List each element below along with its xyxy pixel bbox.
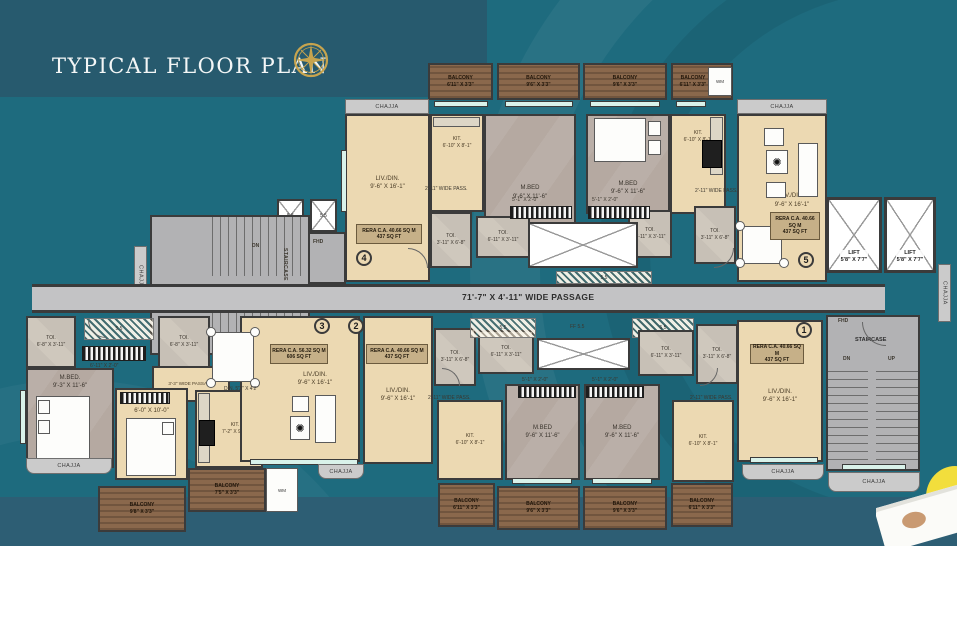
- duct-box-left-2: 5.5: [310, 199, 337, 232]
- plant-symbol: ✺: [290, 416, 310, 440]
- unit5-number: 5: [798, 252, 814, 268]
- unit5-wardrobe-label: 5'-1" X 2'-0": [592, 197, 618, 203]
- central-passage-label: 71'-7" X 4'-11" WIDE PASSAGE: [462, 292, 594, 302]
- unit1-wardrobe: [586, 386, 644, 398]
- unit4-wardrobe: [510, 206, 572, 219]
- armchair-symbol: [292, 396, 309, 412]
- duct-shaft-lower: [537, 338, 630, 370]
- unit3-wardrobe: [82, 346, 146, 361]
- duct-hatch-lower-left: 5.5: [470, 318, 536, 338]
- chajja-top-left: CHAJJA: [345, 99, 429, 114]
- central-passage: [32, 284, 885, 313]
- unit3-number: 3: [314, 318, 330, 334]
- chair-symbol: [250, 327, 260, 337]
- compass-icon: [293, 42, 329, 78]
- chajja-unit3-left: CHAJJA: [26, 458, 112, 474]
- unit3-toilet-2: TOI.6'-8" X 3'-11": [158, 316, 210, 368]
- dining-label: DIN. 5'3" X 4'2": [224, 386, 258, 392]
- dn-label-left: DN: [252, 243, 259, 249]
- unit5-passage-label: 2'-11" WIDE PASS.: [695, 188, 738, 194]
- unit4-toilet-2: TOI.6'-11" X 3'-11": [476, 216, 530, 258]
- unit3-cbed-wardrobe: [120, 392, 170, 404]
- unit2-wardrobe: [518, 386, 576, 398]
- unit5-rera-tag: RERA C.A. 40.66 SQ M437 SQ FT: [770, 212, 820, 240]
- window-sill: [434, 101, 488, 107]
- unit2-number: 2: [348, 318, 364, 334]
- duct-hatch-upper: 5.5: [556, 271, 652, 284]
- balcony-bottom-left-2: BALCONY7'5" X 3'3": [188, 468, 266, 512]
- balcony-bottom-2: BALCONY9'6" X 3'3": [497, 486, 580, 530]
- chajja-unit3-bottom: CHAJJA: [318, 464, 364, 479]
- bed-symbol-unit5: [594, 118, 646, 162]
- dining-table-symbol: [212, 332, 254, 382]
- window-sill: [341, 150, 347, 212]
- unit4-wardrobe-label: 5'-1" X 2'-0": [512, 197, 538, 203]
- stair-landing: [868, 368, 876, 467]
- window-sill: [505, 101, 573, 107]
- unit2-rera-tag: RERA C.A. 40.66 SQ M437 SQ FT: [366, 344, 428, 364]
- balcony-bottom-left-1: BALCONY9'8" X 3'3": [98, 486, 186, 532]
- window-sill: [512, 478, 572, 484]
- chajja-unit1-bottom: CHAJJA: [742, 464, 824, 480]
- chair-symbol: [735, 258, 745, 268]
- unit1-number: 1: [796, 322, 812, 338]
- unit2-master-bedroom: M.BED9'-6" X 11'-6": [505, 384, 580, 480]
- unit3-toilet-1: TOI.6'-8" X 3'-11": [26, 316, 76, 368]
- window-sill: [676, 101, 706, 107]
- chajja-right-vertical: CHAJJA: [938, 264, 951, 322]
- unit5-wardrobe: [588, 206, 650, 219]
- balcony-bottom-4: BALCONY6'11" X 3'3": [671, 483, 733, 527]
- floor-plan-page: TYPICAL FLOOR PLAN BALCONY6'11" X 3'3" B…: [0, 0, 957, 625]
- staircase-label-left: STAIRCASE: [282, 248, 288, 281]
- armchair-symbol: [766, 182, 786, 198]
- sofa-symbol: [798, 143, 818, 197]
- page-title: TYPICAL FLOOR PLAN: [52, 54, 328, 78]
- chair-symbol: [779, 258, 789, 268]
- window-sill: [20, 390, 26, 444]
- window-sill: [592, 478, 652, 484]
- window-sill: [750, 457, 818, 463]
- unit2-kitchen: KIT.6'-10" X 8'-1": [437, 400, 503, 480]
- door-arc: [714, 248, 734, 268]
- pillow-symbol: [38, 400, 50, 414]
- window-sill: [590, 101, 660, 107]
- chair-symbol: [206, 378, 216, 388]
- stove-symbol: [199, 420, 215, 446]
- pillow-symbol: [38, 420, 50, 434]
- unit4-toilet-1: TOI.3'-11" X 6'-8": [430, 212, 472, 268]
- lift-1: LIFT5'8" X 7'7": [826, 197, 882, 273]
- unit1-rera-tag: RERA C.A. 40.66 SQ M437 SQ FT: [750, 344, 804, 364]
- unit4-kitchen: KIT.6'-10" X 8'-1": [430, 114, 484, 212]
- washing-machine-top: WM: [708, 67, 732, 96]
- ff-duct-label: FF 5.5: [570, 324, 584, 330]
- unit4-number: 4: [356, 250, 372, 266]
- balcony-top-1: BALCONY6'11" X 3'3": [428, 63, 493, 100]
- bottom-white-band: [0, 546, 957, 625]
- unit4-rera-tag: RERA C.A. 40.66 SQ M437 SQ FT: [356, 224, 422, 244]
- dn-label-right: DN: [843, 356, 850, 362]
- stove-symbol: [702, 140, 722, 168]
- unit3-rera-tag: RERA C.A. 56.32 SQ M606 SQ FT: [270, 344, 328, 364]
- kitchen-counter: [433, 117, 480, 127]
- unit1-livdin-room: LIV./DIN.9'-6" X 16'-1": [737, 320, 823, 462]
- unit1-master-bedroom: M.BED9'-6" X 11'-6": [584, 384, 660, 480]
- balcony-bottom-1: BALCONY6'11" X 3'3": [438, 483, 495, 527]
- unit4-passage-label: 2'-11" WIDE PASS.: [425, 186, 468, 192]
- unit2-livdin-room: LIV./DIN.9'-6" X 16'-1": [363, 316, 433, 464]
- unit1-toilet-1: TOI.6'-11" X 3'-11": [638, 330, 694, 376]
- balcony-bottom-3: BALCONY9'6" X 3'3": [583, 486, 667, 530]
- chair-symbol: [735, 221, 745, 231]
- lift-2: LIFT5'8" X 7'7": [884, 197, 936, 273]
- title-band: [0, 0, 487, 97]
- chajja-top-right: CHAJJA: [737, 99, 827, 114]
- unit1-kitchen: KIT.6'-10" X 8'-1": [672, 400, 734, 482]
- balcony-top-3: BALCONY9'6" X 3'3": [583, 63, 667, 100]
- sofa-symbol: [315, 395, 336, 443]
- unit1-wardrobe-label: 5'-1" X 2'-0": [592, 377, 618, 383]
- fhd-label-right: FHD: [838, 318, 848, 324]
- unit2-wardrobe-label: 5'-1" X 2'-0": [522, 377, 548, 383]
- duct-shaft-upper: [528, 222, 638, 268]
- pillow-symbol: [162, 422, 174, 435]
- balcony-top-2: BALCONY9'6" X 3'3": [497, 63, 580, 100]
- washing-machine-bottom: WM: [266, 468, 298, 512]
- up-label-right: UP: [888, 356, 895, 362]
- pillow-symbol: [648, 121, 661, 136]
- plant-symbol: ✺: [766, 150, 788, 174]
- pillow-symbol: [648, 140, 661, 155]
- architect-photo: [876, 448, 957, 546]
- chair-symbol: [206, 327, 216, 337]
- armchair-symbol: [764, 128, 784, 146]
- fhd-label-left: FHD: [313, 239, 323, 245]
